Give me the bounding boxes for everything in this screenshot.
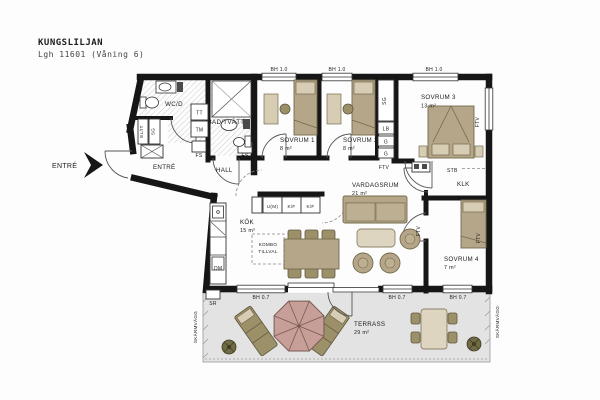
sovrum2-label: SOVRUM 2 [343,137,378,144]
dm-label: DM [214,266,222,272]
sg-label: SG [382,97,388,105]
sovrum4-label: SOVRUM 4 [444,256,479,263]
sr-label: SR [209,301,217,307]
sr-unit [206,290,220,299]
sg-label: SG [151,128,156,135]
um-label: U(M) [267,204,279,209]
entrance-marker: ENTRÉ [52,152,103,178]
coffee-table [357,229,395,247]
window [485,88,493,130]
ftv-label: FTV [475,116,481,127]
kitchen-sink [213,206,224,218]
lb-label: LB [383,127,390,133]
plant-pot [222,340,236,354]
bed-single [294,80,317,135]
kombo-label-line2: TILLVAL [258,249,277,254]
kombo-option-area: KOMBO TILLVAL [252,234,284,264]
window [383,285,412,293]
window [262,73,296,81]
vardagsrum-label: VARDAGSRUM [352,182,399,189]
sovrum1-area: 8 m² [280,146,292,152]
kok-label: KÖK [240,219,255,226]
sovrum4-area: 7 m² [444,265,456,271]
dining-table [284,239,339,269]
page-title: KUNGSLILJAN [38,38,103,48]
g-label: G [384,152,388,158]
bh-label: BH 1.0 [270,67,287,73]
kf-label: K/F [306,204,314,209]
terrace-label: TERRASS [354,321,385,328]
bh-label: BH 1.0 [425,67,442,73]
wcd-label: WC/D [165,101,183,108]
fs-label: FS [242,153,249,159]
sovrum2-area: 8 m² [343,146,355,152]
drawing-header: KUNGSLILJAN Lgh 11601 (Våning 6) [38,38,144,59]
armchair [380,253,400,273]
tt-label: TT [196,111,203,117]
tm-label: TM [196,128,204,134]
kf-label: K/F [287,204,295,209]
ftv-label: FTV [379,165,390,171]
dining-set [284,230,339,278]
sofa [343,196,407,223]
stb-cabinet [412,162,430,172]
bed-single [352,80,375,135]
window [413,73,458,81]
stb-label: STB [447,168,458,174]
hall-label: HALL [216,167,233,174]
bad-label: BAD/TVÄTT [208,119,245,126]
bed-double [419,106,483,158]
vardagsrum-area: 21 m² [352,191,367,197]
desk [327,94,341,124]
page-subtitle: Lgh 11601 (Våning 6) [38,49,144,59]
entrance-arrow-icon [84,152,103,178]
entre-room-label: ENTRÉ [153,164,175,171]
entrance-label: ENTRÉ [52,161,77,170]
bh-label: BH 0.7 [388,295,405,301]
window [322,73,352,81]
desk [264,94,278,124]
counter-end [252,197,262,213]
door-entrance [105,151,132,178]
desk-chair [343,104,353,114]
bed-single [461,200,486,248]
desk-chair [280,104,290,114]
fs-label: FS [196,153,203,159]
klk-label: KLK [457,181,470,188]
wardrobe-x [141,145,163,158]
armchair [353,253,373,273]
window [237,285,285,293]
g-label: G [384,140,388,146]
fs-cabinet [192,141,206,152]
sliding-terrace-door [288,283,379,293]
floor-plan-page: KUNGSLILJAN Lgh 11601 (Våning 6) SKÄRMVÄ… [0,0,600,400]
elit-label: EL/IT [139,125,144,137]
sink [156,81,183,93]
ftv-label: FTV [476,232,482,243]
sovrum3-area: 13 m² [421,104,436,110]
terrace: SKÄRMVÄGG SKÄRMVÄGG TERRASS 29 m² [192,292,500,362]
kombo-label-line1: KOMBO [259,242,278,247]
parasol [274,301,324,351]
sovrum1-label: SOVRUM 1 [280,137,315,144]
bh-label: BH 0.7 [449,295,466,301]
floor-plan-drawing: KUNGSLILJAN Lgh 11601 (Våning 6) SKÄRMVÄ… [0,0,600,400]
shower [212,81,251,117]
ftv-label: FTV [416,225,422,236]
bh-label: BH 0.7 [252,295,269,301]
window [443,285,472,293]
screen-wall-label-right: SKÄRMVÄGG [494,306,500,338]
sovrum3-label: SOVRUM 3 [421,94,456,101]
bh-label: BH 1.0 [328,67,345,73]
toilet [140,97,159,108]
plant-pot [467,337,481,351]
terrace-area: 29 m² [354,330,369,336]
kok-area: 15 m² [240,228,255,234]
screen-wall-label-left: SKÄRMVÄGG [192,311,198,343]
furniture: KOMBO TILLVAL [252,80,486,278]
